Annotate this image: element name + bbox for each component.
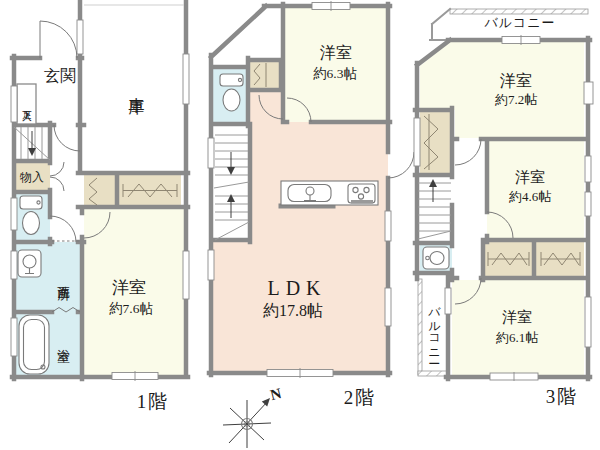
room-bedroom-f2 [285,6,388,122]
label-washroom: 洗面所 [56,276,69,279]
label-garage: 車庫 [128,84,145,86]
room-bedroom61 [452,280,584,377]
washbasin-icon-f3 [423,247,449,269]
label-bedroom46-size: 約4.6帖 [509,190,551,204]
label-bedroom-f2: 洋室 [320,45,352,62]
label-balcony-top: バルコニー [484,16,555,30]
label-bedroom72: 洋室 [500,73,532,90]
north-arrowhead [262,398,270,407]
stairs-f2-area [213,127,250,240]
floorplan-canvas: 玄関 車庫 下足入 物入 洗面所 浴室 洋室 約7.6帖 1階 洋室 約6.3帖… [0,0,600,450]
grill-icon [351,200,373,204]
room-garage [80,4,186,173]
closet-f1-a [84,173,117,207]
label-bedroom72-size: 約7.2帖 [495,93,537,107]
label-bedroom61-size: 約6.1帖 [496,331,538,345]
hallway-f1 [50,125,82,242]
floor2-label: 2階 [344,388,377,408]
label-bedroom-f1: 洋室 [112,279,146,297]
compass-rose [223,398,271,448]
floor2-plan [208,1,414,378]
label-shoe-box: 下足入 [21,103,31,106]
label-bedroom46: 洋室 [515,170,545,186]
floor1-label: 1階 [137,392,170,412]
floor3-label: 3階 [546,387,579,407]
corridor-f2 [250,90,283,122]
floor1-plan [11,2,189,381]
bathtub-icon [19,315,49,374]
label-ldk: LDK [267,278,326,299]
label-bathroom: 浴室 [56,339,69,341]
washbasin-icon-f1 [18,250,41,277]
label-genkan: 玄関 [44,68,76,85]
label-bedroom-f1-size: 約7.6帖 [109,302,153,316]
floorplan-drawing [0,0,600,450]
label-ldk-size: 約17.8帖 [263,303,323,320]
kitchen-icon [281,181,378,205]
label-bedroom-f2-size: 約6.3帖 [313,67,357,81]
label-storage: 物入 [20,171,44,184]
label-bedroom61: 洋室 [502,310,532,326]
label-balcony-side: バルコニー [428,298,441,358]
